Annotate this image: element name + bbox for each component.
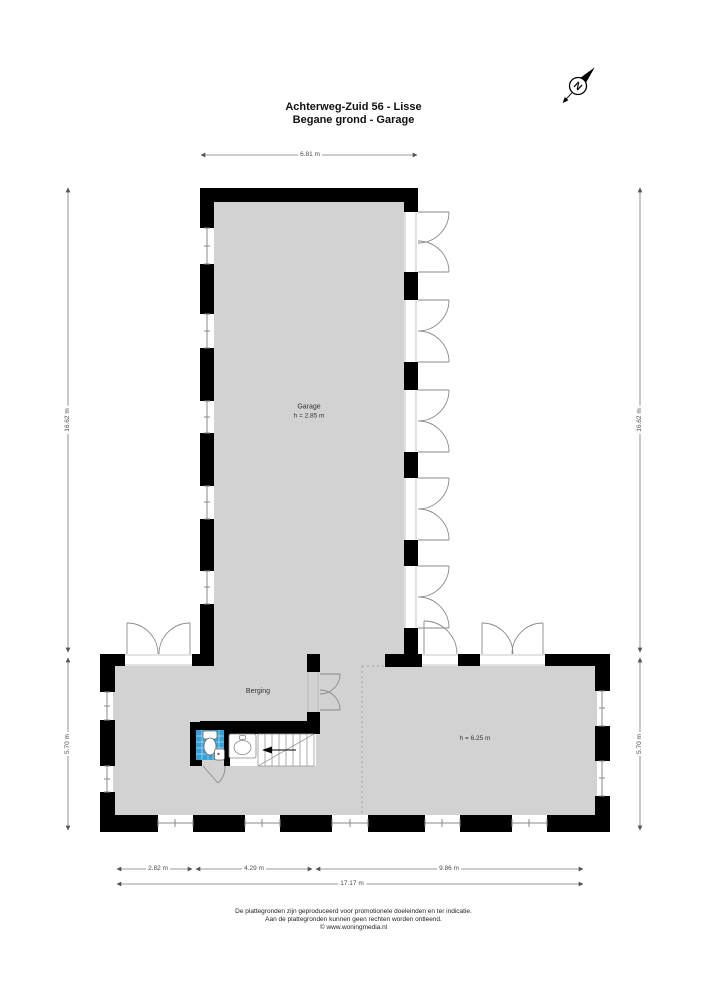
dim-right-lower: 5.70 m (636, 732, 644, 756)
room-label-garage: Garage h = 2.85 m (294, 404, 325, 421)
floor-fills (113, 202, 597, 815)
dim-bottom-seg1: 2.82 m (146, 865, 170, 873)
dim-bottom-seg2: 4.29 m (242, 865, 266, 873)
floor-plan (0, 0, 707, 1000)
disclaimer-line3: © www.woningmedia.nl (0, 924, 707, 932)
room-label-open-space: h = 6.25 m (460, 735, 491, 744)
stairs-icon (258, 734, 314, 766)
disclaimer-line1: De plattegronden zijn geproduceerd voor … (0, 908, 707, 916)
garage-name: Garage (294, 404, 325, 413)
corner-sink-icon (215, 749, 225, 760)
disclaimer: De plattegronden zijn geproduceerd voor … (0, 908, 707, 931)
floorplan-page: Achterweg-Zuid 56 - Lisse Begane grond -… (0, 0, 707, 1000)
bathroom (196, 730, 225, 760)
dim-left-lower: 5.70 m (64, 732, 72, 756)
dim-bottom-total: 17.17 m (338, 880, 366, 888)
dim-bottom-seg3: 9.86 m (437, 865, 461, 873)
dim-right-upper: 16.62 m (636, 406, 644, 434)
dim-left-upper: 16.62 m (64, 406, 72, 434)
dim-top-width: 6.81 m (298, 151, 322, 159)
garage-height: h = 2.85 m (294, 412, 325, 421)
washbasin-icon (229, 734, 256, 758)
room-label-berging: Berging (246, 688, 270, 697)
disclaimer-line2: Aan de plattegronden kunnen geen rechten… (0, 916, 707, 924)
